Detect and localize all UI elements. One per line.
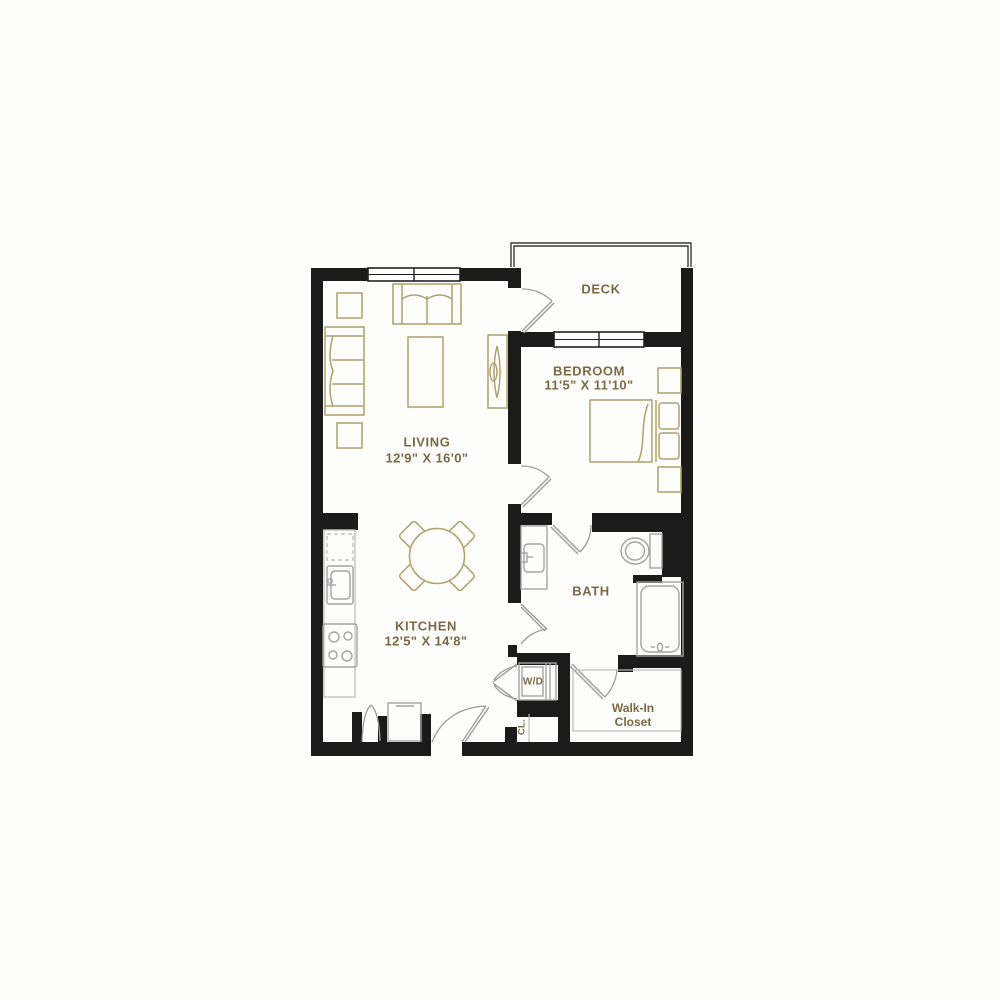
washer-dryer-label: W/D bbox=[523, 677, 543, 688]
bed bbox=[590, 400, 679, 462]
kitchen-counter bbox=[324, 530, 355, 697]
closet-label: CL. bbox=[517, 719, 528, 735]
living-dimensions: 12'9" X 16'0" bbox=[386, 451, 469, 466]
bath-door bbox=[551, 525, 591, 554]
kitchen-bath-door bbox=[521, 604, 547, 644]
walk-in-closet-label: Walk-In Closet bbox=[612, 701, 654, 729]
washer-dryer-doors bbox=[493, 664, 517, 701]
bedroom-label: BEDROOM bbox=[553, 364, 625, 379]
deck-door bbox=[522, 289, 554, 333]
end-table-top bbox=[337, 293, 362, 318]
coffee-table bbox=[408, 337, 443, 407]
walk-in-closet-label-line1: Walk-In bbox=[612, 701, 654, 715]
bedroom-dimensions: 11'5" X 11'10" bbox=[544, 378, 633, 393]
dishwasher bbox=[327, 534, 353, 560]
deck-railing bbox=[511, 243, 691, 267]
kitchen-dimensions: 12'5" X 14'8" bbox=[385, 634, 468, 649]
bathtub bbox=[637, 582, 683, 656]
living-label: LIVING bbox=[404, 435, 451, 450]
nightstand-top bbox=[658, 368, 681, 393]
loveseat bbox=[393, 284, 461, 324]
bath-vanity bbox=[521, 526, 547, 589]
end-table-bottom bbox=[337, 423, 362, 448]
deck-label: DECK bbox=[581, 282, 620, 297]
toilet bbox=[621, 534, 662, 568]
nightstand-bottom bbox=[658, 467, 681, 492]
entry-door bbox=[432, 706, 489, 742]
kitchen-label: KITCHEN bbox=[395, 619, 457, 634]
floor-plan-drawing bbox=[0, 0, 1000, 1000]
sofa bbox=[325, 327, 364, 415]
refrigerator bbox=[388, 703, 421, 741]
dining-table bbox=[398, 520, 475, 591]
bath-label: BATH bbox=[572, 584, 610, 599]
tv-console bbox=[488, 335, 507, 408]
living-window bbox=[368, 268, 460, 281]
pantry-door bbox=[362, 705, 380, 741]
kitchen-sink bbox=[327, 566, 353, 604]
stove bbox=[323, 624, 357, 667]
floor-plan: DECK BEDROOM 11'5" X 11'10" LIVING 12'9"… bbox=[0, 0, 1000, 1000]
bedroom-door bbox=[521, 466, 551, 507]
bedroom-window bbox=[554, 332, 644, 347]
walk-in-closet-door bbox=[570, 664, 617, 699]
walk-in-closet-label-line2: Closet bbox=[612, 715, 654, 729]
